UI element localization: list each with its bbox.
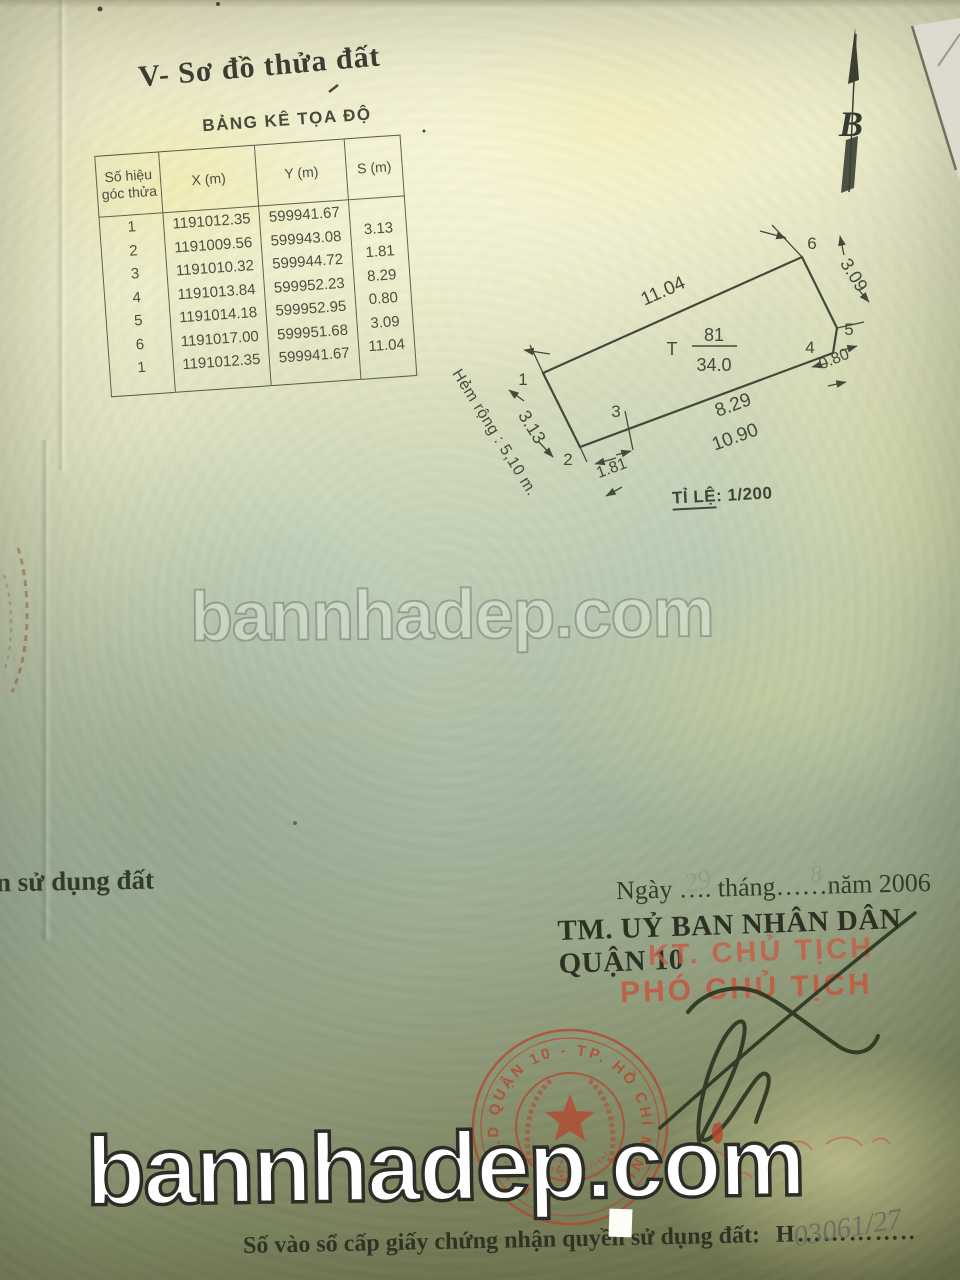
lot-number: 81: [704, 325, 724, 345]
svg-text:4: 4: [805, 338, 814, 357]
svg-text:5: 5: [844, 320, 853, 339]
underlying-page-corner: [898, 18, 960, 180]
page-top-edge-shadow: [0, 0, 960, 8]
scale-label: TỈ LỆ: [672, 486, 717, 510]
north-letter: B: [838, 104, 863, 144]
handwritten-day: 29: [681, 864, 714, 900]
col-header-y: Y (m): [254, 139, 348, 206]
dim-top: 11.04: [638, 272, 689, 310]
document-photo: V- Sơ đồ thửa đất BẢNG KÊ TỌA ĐỘ Số hiệu…: [0, 0, 960, 1280]
watermark-bottom: bannhadep.com: [85, 1104, 906, 1227]
paper-crease: [40, 440, 52, 940]
left-edge-text-fragment: n sử dụng đất: [0, 865, 154, 899]
svg-text:3: 3: [611, 402, 620, 421]
lot-area: 34.0: [696, 355, 731, 375]
coordinate-table: Số hiệu góc thửa X (m) Y (m) S (m) 11191…: [94, 135, 417, 397]
date-line: Ngày …. tháng……năm 2006: [616, 868, 932, 906]
dim-bottom-1: 1.81: [594, 455, 629, 482]
dim-right-small: 0.80: [817, 346, 852, 373]
paper-crease: [56, 0, 68, 470]
parcel-outline: [543, 257, 837, 447]
white-patch: [609, 1209, 633, 1238]
svg-text:1: 1: [518, 370, 527, 389]
lot-fraction: T 81 34.0: [667, 325, 738, 375]
parcel-diagram: 11.04 8.29 10.90 1.81 3.13 0.80 3.09 1 2…: [420, 205, 960, 535]
lot-prefix: T: [667, 339, 678, 359]
north-arrowhead: [848, 28, 859, 84]
section-title: V- Sơ đồ thửa đất: [137, 39, 382, 94]
col-header-s: S (m): [344, 135, 404, 200]
dim-bottom-total: 10.90: [709, 419, 761, 455]
dim-bottom-2: 8.29: [712, 389, 754, 421]
partial-stamp-arc-left-edge: [4, 548, 27, 692]
svg-text:6: 6: [807, 234, 816, 253]
table-title: BẢNG KÊ TỌA ĐỘ: [202, 103, 400, 137]
handwritten-month: 8: [809, 861, 824, 889]
scale-value: : 1/200: [716, 483, 773, 505]
register-label: Số vào sổ cấp giấy chứng nhận quyền sử d…: [243, 1222, 760, 1259]
point-labels: 1 2 3 4 5 6: [518, 234, 853, 469]
dim-left: 3.13: [514, 407, 550, 447]
coordinate-table-block: BẢNG KÊ TỌA ĐỘ Số hiệu góc thửa X (m) Y …: [92, 103, 417, 397]
col-header-point: Số hiệu góc thửa: [95, 152, 163, 217]
north-feather: [841, 136, 858, 193]
watermark-middle: bannhadep.com: [190, 571, 771, 656]
north-arrow: B: [826, 22, 890, 202]
dim-right: 3.09: [836, 255, 872, 295]
col-header-x: X (m): [159, 145, 259, 213]
svg-text:2: 2: [563, 450, 572, 469]
